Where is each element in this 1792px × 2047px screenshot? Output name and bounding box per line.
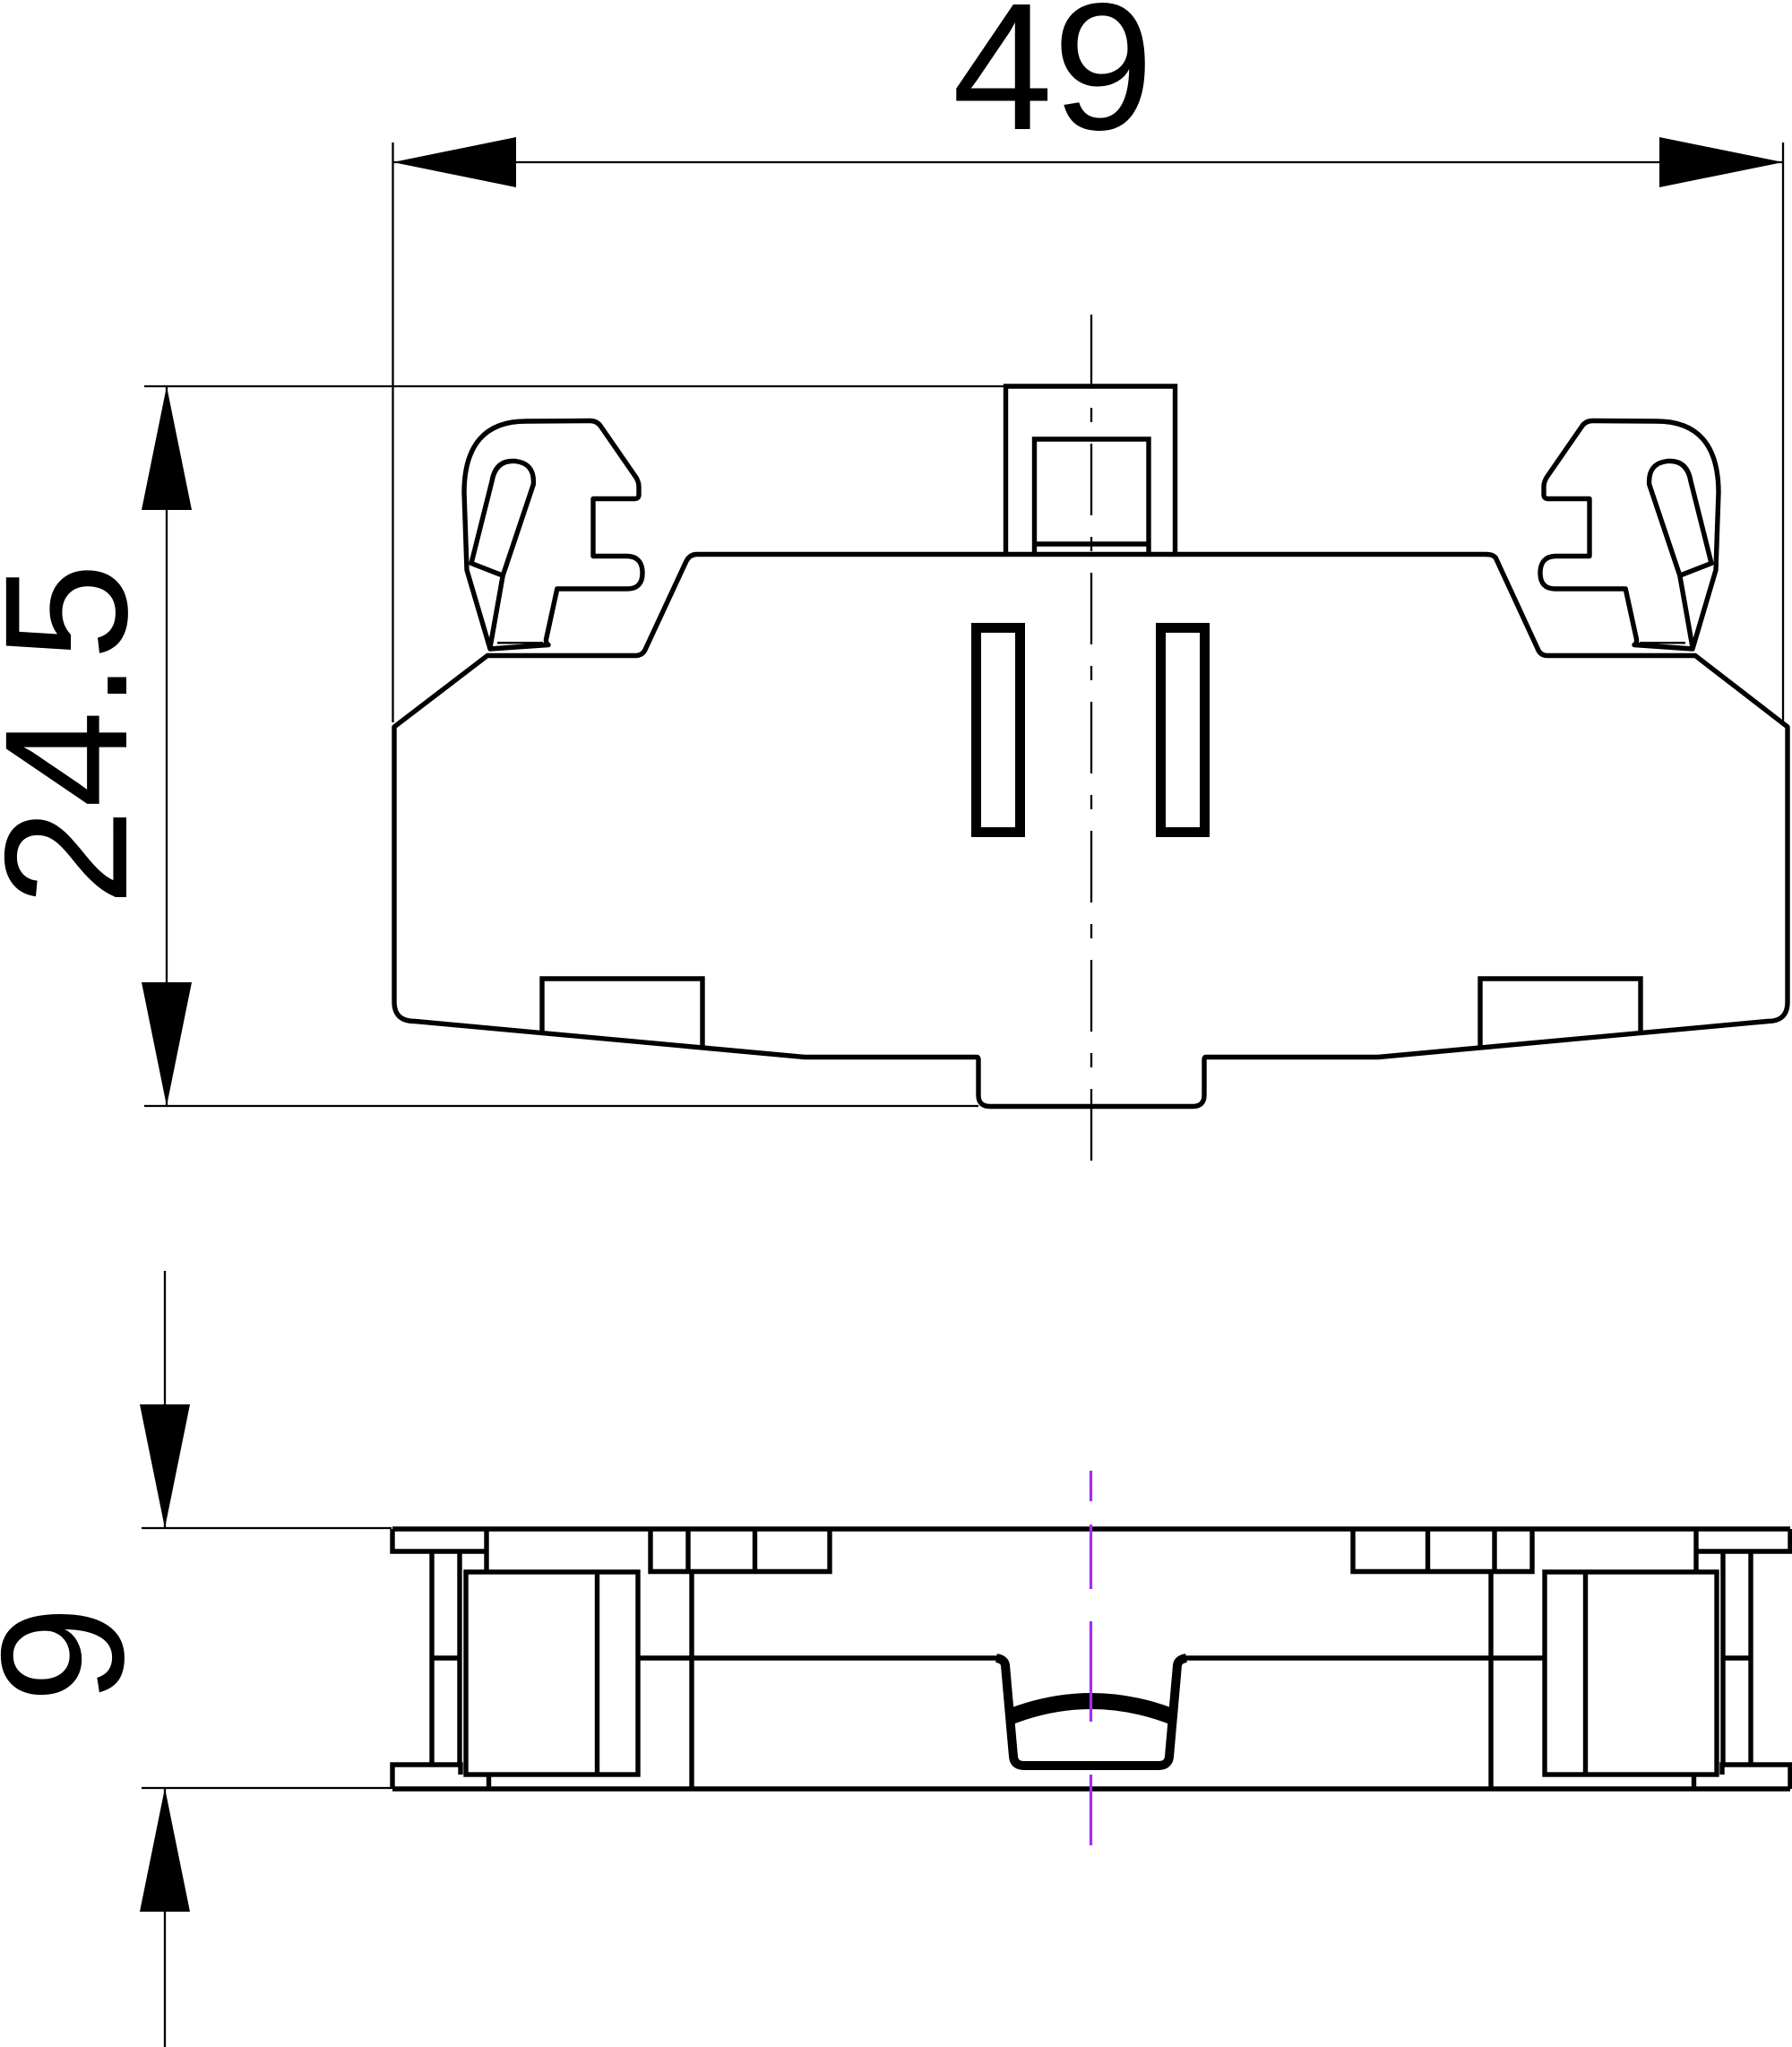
svg-text:9: 9	[0, 1606, 160, 1703]
svg-text:24.5: 24.5	[0, 562, 164, 906]
svg-text:49: 49	[952, 0, 1154, 168]
